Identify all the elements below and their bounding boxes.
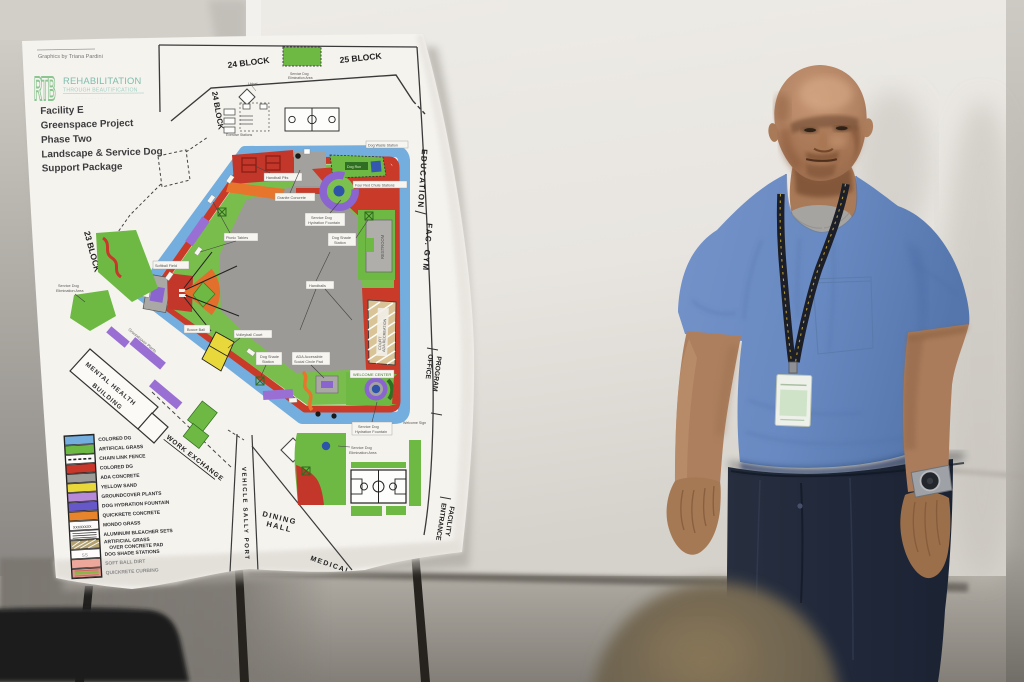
svg-text:Handball Pits: Handball Pits <box>266 176 288 180</box>
svg-text:Station: Station <box>334 241 346 245</box>
svg-text:xxxxxxxx: xxxxxxxx <box>73 524 92 530</box>
svg-text:Exercise Stations: Exercise Stations <box>226 133 252 137</box>
svg-text:Support Package: Support Package <box>42 161 123 174</box>
svg-text:Dog Shade: Dog Shade <box>260 355 279 359</box>
svg-text:Hydration Fountain: Hydration Fountain <box>308 221 340 225</box>
svg-text:Granite Concrete: Granite Concrete <box>277 196 306 200</box>
svg-text:SS: SS <box>82 552 88 557</box>
svg-text:Four Red Chute Stations: Four Red Chute Stations <box>355 184 395 188</box>
svg-text:ADA Accessible: ADA Accessible <box>296 355 323 359</box>
svg-text:Bocce Ball: Bocce Ball <box>187 328 205 332</box>
svg-text:Volleyball Court: Volleyball Court <box>236 333 263 337</box>
svg-text:Dog Waste Station: Dog Waste Station <box>368 144 398 148</box>
svg-text:Station: Station <box>262 360 274 364</box>
svg-text:WELCOME CENTER: WELCOME CENTER <box>353 372 391 377</box>
svg-text:Facility E: Facility E <box>40 105 84 117</box>
svg-text:Handballs: Handballs <box>309 284 326 288</box>
svg-text:Elimination Area: Elimination Area <box>349 451 377 455</box>
svg-text:THROUGH BEAUTIFICATION: THROUGH BEAUTIFICATION <box>63 88 138 94</box>
svg-text:Graphics by Triana Pardini: Graphics by Triana Pardini <box>38 54 103 60</box>
svg-text:Phase Two: Phase Two <box>41 134 92 146</box>
svg-text:Elimination Area: Elimination Area <box>56 289 84 293</box>
svg-text:Service Dog: Service Dog <box>351 446 372 450</box>
svg-text:RTB: RTB <box>34 72 55 108</box>
svg-text:COURT: COURT <box>378 336 382 350</box>
svg-text:Picnic Tables: Picnic Tables <box>226 236 248 240</box>
svg-text:Dog Shade: Dog Shade <box>332 236 351 240</box>
svg-text:Urinal: Urinal <box>248 82 258 86</box>
svg-text:Service Dog: Service Dog <box>58 284 79 288</box>
svg-text:Elimination Area: Elimination Area <box>288 76 313 80</box>
svg-text:..........: .......... <box>76 95 107 100</box>
svg-text:RESTROOM: RESTROOM <box>380 234 385 259</box>
svg-text:Hydration Fountain: Hydration Fountain <box>355 430 387 434</box>
svg-text:Welcome Sign: Welcome Sign <box>403 421 426 425</box>
svg-text:Service Dog: Service Dog <box>358 425 379 429</box>
svg-text:Service Dog: Service Dog <box>311 216 332 220</box>
svg-text:Social Circle Pad: Social Circle Pad <box>294 360 323 364</box>
svg-text:REHABILITATION: REHABILITATION <box>63 75 142 86</box>
svg-text:Dog Run: Dog Run <box>347 165 361 169</box>
svg-text:Softball Field: Softball Field <box>155 264 177 268</box>
